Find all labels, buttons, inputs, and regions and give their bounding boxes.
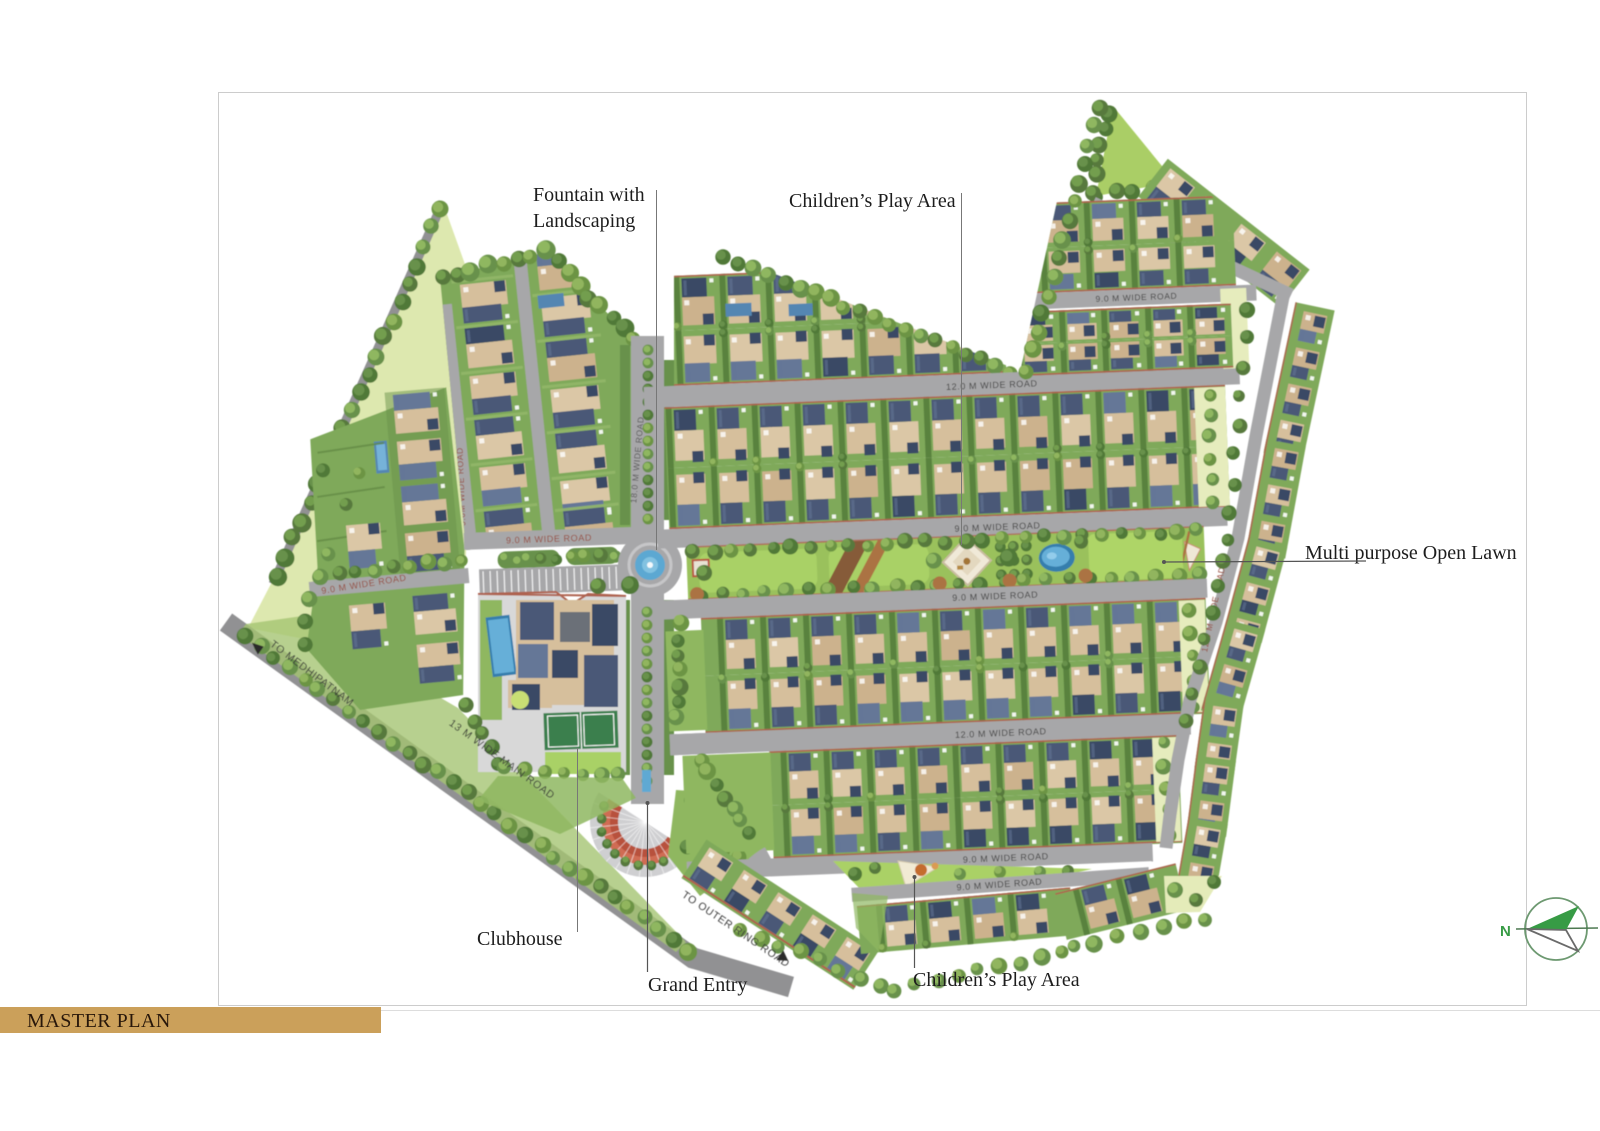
- svg-text:Fountain with: Fountain with: [533, 184, 645, 206]
- svg-text:Clubhouse: Clubhouse: [477, 928, 563, 950]
- svg-text:Children’s Play Area: Children’s Play Area: [789, 190, 956, 212]
- svg-text:N: N: [1500, 923, 1511, 940]
- svg-text:MASTER PLAN: MASTER PLAN: [27, 1010, 171, 1032]
- svg-text:Grand Entry: Grand Entry: [648, 974, 747, 996]
- svg-text:Landscaping: Landscaping: [533, 210, 635, 232]
- svg-text:Children’s Play Area: Children’s Play Area: [913, 969, 1080, 991]
